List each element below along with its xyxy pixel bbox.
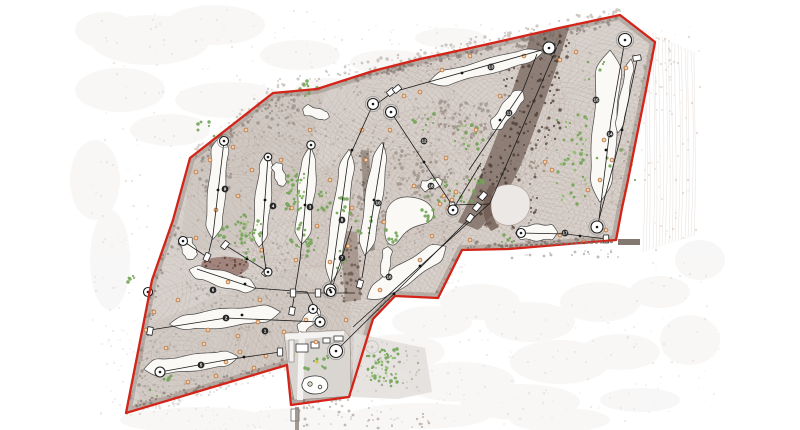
svg-text:5: 5 bbox=[200, 363, 203, 368]
svg-text:16: 16 bbox=[386, 275, 392, 280]
svg-text:9: 9 bbox=[224, 187, 227, 192]
svg-text:17: 17 bbox=[562, 231, 568, 236]
svg-text:14: 14 bbox=[607, 132, 613, 137]
svg-text:6: 6 bbox=[212, 288, 215, 293]
svg-text:7: 7 bbox=[341, 256, 344, 261]
svg-text:12: 12 bbox=[421, 139, 427, 144]
svg-text:13: 13 bbox=[488, 65, 494, 70]
svg-text:2: 2 bbox=[225, 316, 228, 321]
svg-text:3: 3 bbox=[309, 205, 312, 210]
svg-text:11: 11 bbox=[507, 111, 512, 116]
svg-text:4: 4 bbox=[272, 204, 275, 209]
svg-text:8: 8 bbox=[341, 218, 344, 223]
svg-text:18: 18 bbox=[428, 184, 434, 189]
svg-text:1: 1 bbox=[264, 329, 267, 334]
svg-text:15: 15 bbox=[593, 98, 599, 103]
svg-text:10: 10 bbox=[375, 201, 381, 206]
